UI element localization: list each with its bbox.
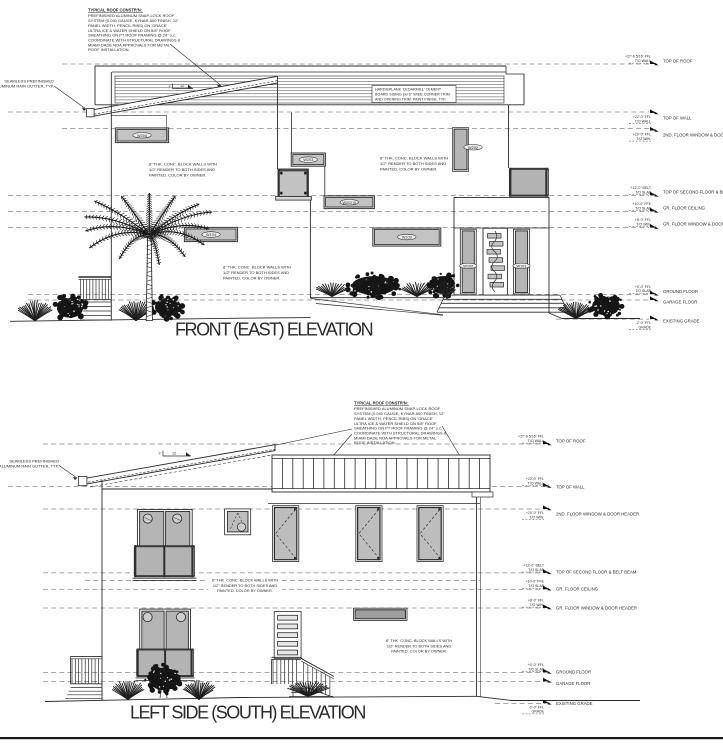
svg-text:2: 2 [159,451,161,455]
svg-text:TYPICAL ROOF CONSTR'N:: TYPICAL ROOF CONSTR'N: [354,401,408,406]
svg-text:+22'-0" FFL: +22'-0" FFL [526,477,544,481]
svg-text:T/O WALL: T/O WALL [528,439,544,443]
svg-text:ALUMINUM RAIN GUTTER, TYP.: ALUMINUM RAIN GUTTER, TYP. [0,464,59,469]
svg-text:W202 B: W202 B [342,201,356,205]
svg-text:8" THK. CONC. BLOCK WALLS WITH: 8" THK. CONC. BLOCK WALLS WITH [386,638,453,643]
svg-text:GR. FLOOR CEILING: GR. FLOOR CEILING [556,587,599,592]
svg-text:2: 2 [169,84,171,88]
svg-text:+0'-0" FFL: +0'-0" FFL [635,285,651,289]
svg-text:8" THK. CONC. BLOCK WALLS WITH: 8" THK. CONC. BLOCK WALLS WITH [380,156,448,161]
svg-text:TOP OF ROOF: TOP OF ROOF [663,59,693,64]
svg-text:+12'-0" BELT: +12'-0" BELT [524,563,545,567]
svg-text:PAINTED. COLOR BY OWNER.: PAINTED. COLOR BY OWNER. [391,649,447,654]
svg-text:GR. FLOOR WINDOW & DOOR HEADER: GR. FLOOR WINDOW & DOOR HEADER [663,222,723,227]
svg-text:TOP OF WALL: TOP OF WALL [663,116,692,121]
svg-text:ROOF INSTALLATION.: ROOF INSTALLATION. [354,440,396,445]
svg-text:W101: W101 [517,264,527,268]
svg-text:GARAGE FLOOR: GARAGE FLOOR [663,300,697,305]
svg-text:T/O SLAB: T/O SLAB [528,667,544,671]
svg-text:8" THK. CONC. BLOCK WALLS WITH: 8" THK. CONC. BLOCK WALLS WITH [223,265,291,270]
svg-text:T/O WIN.: T/O WIN. [636,137,651,141]
svg-text:AND OPENING TRIM. PAINT FINISH: AND OPENING TRIM. PAINT FINISH, TYP. [375,98,446,102]
svg-text:BOARD SIDING (w/ 6" WIDE CORNE: BOARD SIDING (w/ 6" WIDE CORNER TRIM [375,93,450,97]
svg-text:T/O SLAB: T/O SLAB [528,584,544,588]
svg-text:+10'-0" FFE: +10'-0" FFE [632,202,651,206]
svg-text:W103: W103 [402,236,412,240]
svg-text:+10'-0" FFE: +10'-0" FFE [525,580,544,584]
svg-text:T/O WALL: T/O WALL [528,481,544,485]
svg-text:T/O SLAB: T/O SLAB [528,568,544,572]
svg-text:HARDIEPLANK 'CEDARMILL' CEMENT: HARDIEPLANK 'CEDARMILL' CEMENT [375,88,442,92]
svg-text:1/2" RENDER TO BOTH SIDES AND: 1/2" RENDER TO BOTH SIDES AND [213,583,278,588]
svg-text:T/O SLAB: T/O SLAB [635,190,651,194]
svg-text:GRADE: GRADE [639,326,652,330]
svg-text:1/2" RENDER TO BOTH SIDES AND: 1/2" RENDER TO BOTH SIDES AND [223,270,289,275]
svg-text:2ND. FLOOR WINDOW & DOOR HEADE: 2ND. FLOOR WINDOW & DOOR HEADER [663,133,723,138]
svg-text:W203: W203 [303,158,313,162]
svg-text:T/O WIN.: T/O WIN. [636,223,651,227]
svg-text:+0'-0" FFL: +0'-0" FFL [528,663,544,667]
svg-text:GR. FLOOR WINDOW & DOOR HEADER: GR. FLOOR WINDOW & DOOR HEADER [556,606,637,611]
svg-text:EXISTING GRADE: EXISTING GRADE [663,319,700,324]
svg-text:T/O SLAB: T/O SLAB [635,289,651,293]
svg-text:T/O WIN.: T/O WIN. [529,603,544,607]
svg-text:2ND. FLOOR WINDOW & DOOR HEADE: 2ND. FLOOR WINDOW & DOOR HEADER [556,512,639,517]
svg-text:GROUND FLOOR: GROUND FLOOR [663,289,698,294]
svg-text:ALUMINUM RAIN GUTTER, TYP.: ALUMINUM RAIN GUTTER, TYP. [0,84,54,89]
svg-text:ROOF INSTALLATION.: ROOF INSTALLATION. [88,47,130,52]
svg-text:TOP OF WALL: TOP OF WALL [556,485,585,490]
svg-text:+20'-0" FFL: +20'-0" FFL [526,511,544,515]
svg-text:+8'-0" FFL: +8'-0" FFL [528,599,544,603]
svg-text:-2'-0" FFL: -2'-0" FFL [529,705,544,709]
svg-text:T/O WIN.: T/O WIN. [529,515,544,519]
svg-text:LEFT SIDE (SOUTH) ELEVATION: LEFT SIDE (SOUTH) ELEVATION [130,703,365,723]
svg-text:1/2" RENDER TO BOTH SIDES AND: 1/2" RENDER TO BOTH SIDES AND [387,643,452,648]
svg-text:PAINTED. COLOR BY OWNER.: PAINTED. COLOR BY OWNER. [217,588,273,593]
svg-text:+27'-6 5/16" FFL: +27'-6 5/16" FFL [518,435,544,439]
svg-text:GRADE: GRADE [532,710,545,714]
svg-text:TOP OF SECOND FLOOR & BELT BEA: TOP OF SECOND FLOOR & BELT BEAM [663,190,723,195]
svg-text:8" THK. CONC. BLOCK WALLS WITH: 8" THK. CONC. BLOCK WALLS WITH [212,578,279,583]
svg-text:GARAGE FLOOR: GARAGE FLOOR [556,681,590,686]
svg-text:+20'-0" FFL: +20'-0" FFL [633,133,651,137]
svg-text:PAINTED. COLOR BY OWNER.: PAINTED. COLOR BY OWNER. [380,167,437,172]
svg-text:T/O WALL: T/O WALL [635,59,651,63]
svg-text:FRONT (EAST) ELEVATION: FRONT (EAST) ELEVATION [175,320,373,340]
svg-text:GR. FLOOR CEILING: GR. FLOOR CEILING [663,206,706,211]
svg-text:T/O WALL: T/O WALL [635,119,651,123]
svg-text:T/O SLAB: T/O SLAB [635,206,651,210]
svg-text:-2'-0" FFL: -2'-0" FFL [636,321,651,325]
svg-text:PAINTED. COLOR BY OWNER.: PAINTED. COLOR BY OWNER. [223,276,280,281]
svg-text:W202: W202 [468,146,478,150]
svg-text:W204: W204 [137,134,147,138]
svg-text:12: 12 [180,84,184,88]
svg-text:W104: W104 [206,233,216,237]
svg-text:PAINTED. COLOR BY OWNER.: PAINTED. COLOR BY OWNER. [149,173,206,178]
svg-text:+12'-0" BELT: +12'-0" BELT [631,186,652,190]
svg-text:TOP OF ROOF: TOP OF ROOF [556,439,586,444]
svg-text:12: 12 [172,452,176,456]
svg-text:1/2" RENDER TO BOTH SIDES AND: 1/2" RENDER TO BOTH SIDES AND [149,167,215,172]
svg-text:W102: W102 [463,264,473,268]
svg-text:8" THK. CONC. BLOCK WALLS WITH: 8" THK. CONC. BLOCK WALLS WITH [149,162,217,167]
svg-text:+22'-0" FFL: +22'-0" FFL [633,115,651,119]
svg-text:TOP OF SECOND FLOOR & BELT BEA: TOP OF SECOND FLOOR & BELT BEAM [556,570,637,575]
svg-text:EXISTING GRADE: EXISTING GRADE [556,701,593,706]
svg-text:1/2" RENDER TO BOTH SIDES AND: 1/2" RENDER TO BOTH SIDES AND [380,161,446,166]
svg-text:TYPICAL ROOF CONSTR'N:: TYPICAL ROOF CONSTR'N: [88,8,142,13]
svg-text:+8'-0" FFL: +8'-0" FFL [635,218,651,222]
svg-text:GROUND FLOOR: GROUND FLOOR [556,670,591,675]
svg-text:+27'-6 5/16" FFL: +27'-6 5/16" FFL [625,55,651,59]
